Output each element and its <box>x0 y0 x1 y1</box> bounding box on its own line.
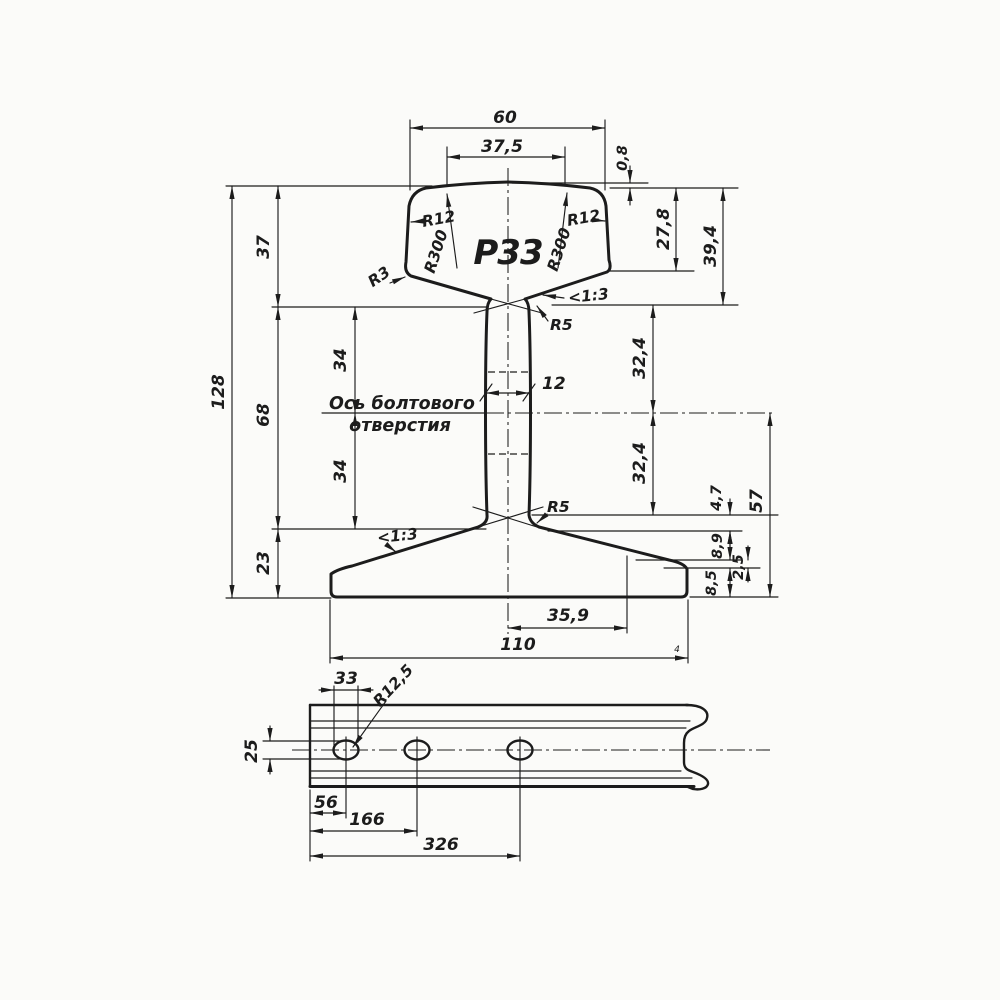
leader-r300-left <box>447 194 457 268</box>
dim-web-thick-label: 12 <box>542 374 566 394</box>
slope-foot-label: <1:3 <box>376 525 418 547</box>
dim-total-height-label: 128 <box>209 374 229 410</box>
dim-axis-down-label: 32,4 <box>630 442 650 484</box>
dim-foot-zone-label: 23 <box>254 551 274 575</box>
dim-hole-height-label: 25 <box>242 739 262 763</box>
leader-slope-head <box>543 295 564 298</box>
bolt-axis-note-line2: отверстия <box>349 416 451 436</box>
r300-right-label: R300 <box>544 225 575 273</box>
dim-8-9-label: 8,9 <box>710 533 726 559</box>
dim-head-width-label: 60 <box>493 108 517 128</box>
dim-4-7-label: 4,7 <box>709 484 725 512</box>
r12-right-label: R12 <box>566 206 602 230</box>
drawing-sheet: 60 37,5 0,8 27,8 39,4 37 128 34 34 68 23… <box>0 0 1000 1000</box>
leader-r5-upper <box>537 306 548 321</box>
side-view-rail-end-profile <box>684 705 708 789</box>
dim-hole1-label: 56 <box>314 793 338 813</box>
dim-crown-width-label: 37,5 <box>481 137 523 157</box>
dim-foot-width-label: 110 <box>500 635 536 655</box>
dim-head-total-label: 39,4 <box>701 225 721 267</box>
dim-web-zone-label: 68 <box>254 403 274 427</box>
dim-57-label: 57 <box>747 489 767 513</box>
dim-web-lower-label: 34 <box>331 459 351 483</box>
dim-head-side-label: 27,8 <box>654 208 674 250</box>
profile-designation: Р33 <box>473 233 542 273</box>
dim-top-zone-label: 37 <box>254 235 274 259</box>
r5-upper-label: R5 <box>550 316 573 334</box>
r300-left-label: R300 <box>421 227 452 275</box>
dim-8-5-label: 8,5 <box>704 570 720 596</box>
dim-crown-drop-label: 0,8 <box>615 145 631 171</box>
dim-hole2-label: 166 <box>349 810 385 830</box>
dim-hole-length-label: 33 <box>334 669 358 689</box>
dim-hole3-label: 326 <box>423 835 459 855</box>
dim-2-5-label: 2,5 <box>731 554 747 580</box>
slope-head-label: <1:3 <box>567 285 609 307</box>
dim-axis-up-label: 32,4 <box>630 337 650 379</box>
bolt-axis-note-line1: Ось болтового <box>329 394 475 414</box>
cross-section-dimensions <box>226 120 778 663</box>
leader-slope-foot <box>387 545 396 552</box>
dim-foot-half-label: 35,9 <box>547 606 589 626</box>
r5-lower-label: R5 <box>547 498 570 516</box>
side-view-dimensions <box>263 686 520 861</box>
technical-drawing: 60 37,5 0,8 27,8 39,4 37 128 34 34 68 23… <box>0 0 1000 1000</box>
r3-label: R3 <box>365 263 394 291</box>
rail-side-view <box>292 705 770 789</box>
dim-web-upper-label: 34 <box>331 348 351 372</box>
small-corner-mark: 4 <box>674 645 680 655</box>
cross-section-labels: 60 37,5 0,8 27,8 39,4 37 128 34 34 68 23… <box>209 108 767 655</box>
hole-radius-label: R12,5 <box>370 661 417 710</box>
